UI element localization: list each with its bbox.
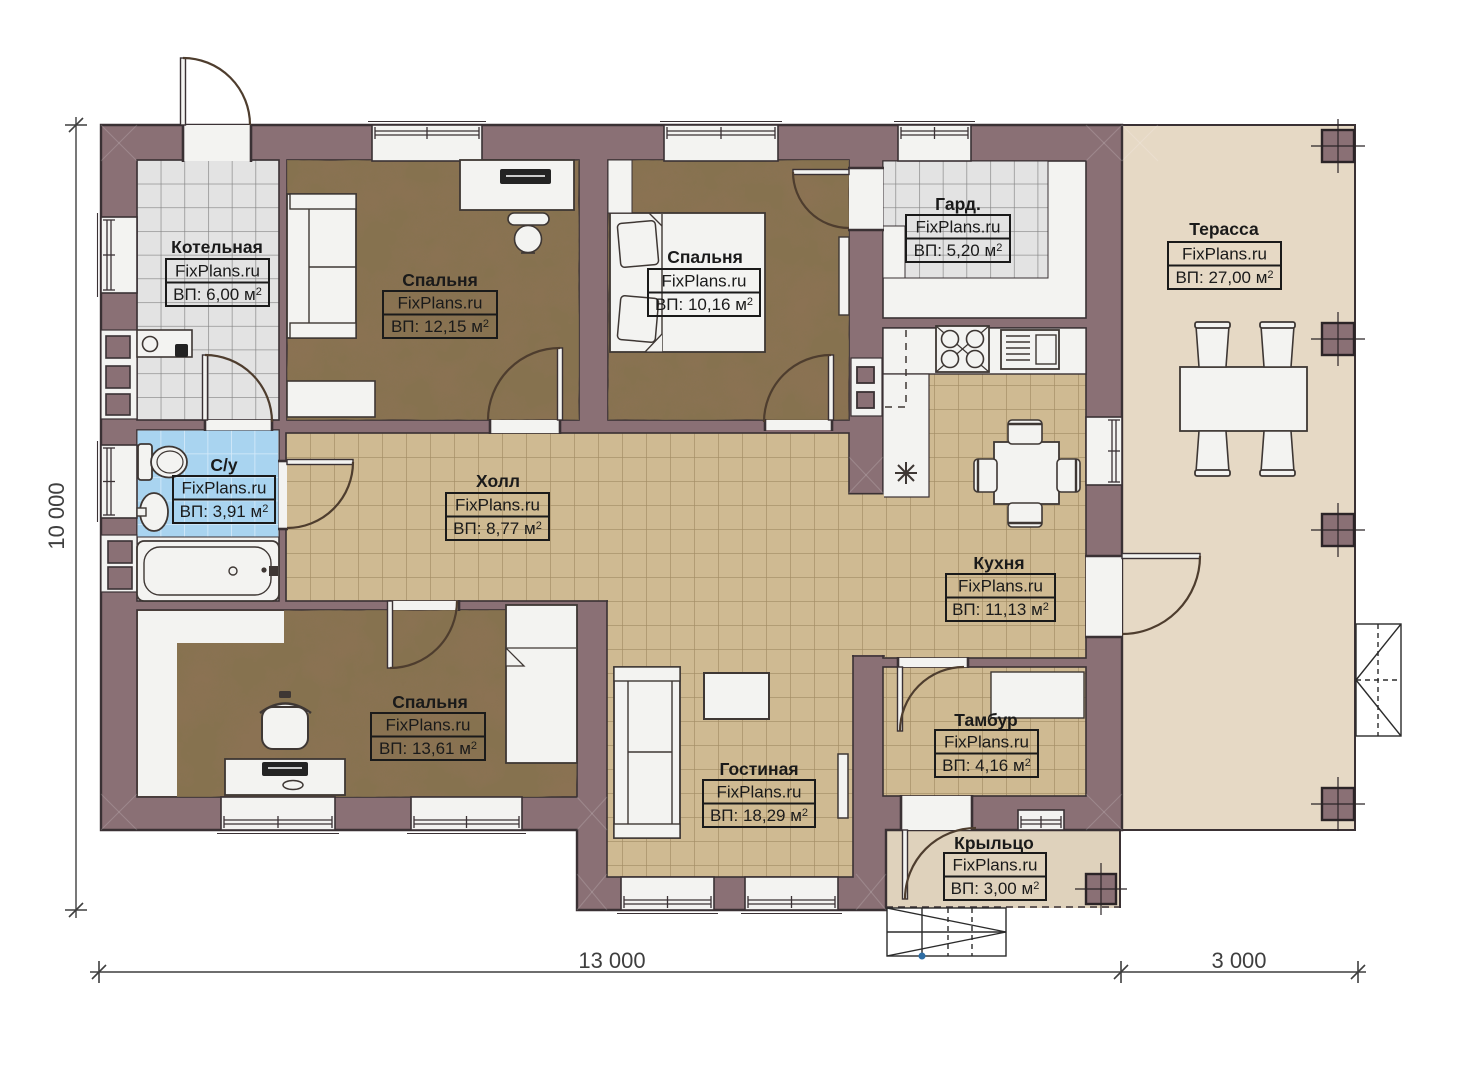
svg-text:FixPlans.ru: FixPlans.ru <box>1182 245 1267 264</box>
svg-text:ВП: 4,16 м2: ВП: 4,16 м2 <box>942 756 1031 775</box>
svg-text:FixPlans.ru: FixPlans.ru <box>661 272 746 291</box>
svg-text:10 000: 10 000 <box>44 482 69 549</box>
svg-text:ВП: 27,00 м2: ВП: 27,00 м2 <box>1175 268 1273 287</box>
svg-text:3 000: 3 000 <box>1211 948 1266 973</box>
svg-text:FixPlans.ru: FixPlans.ru <box>716 783 801 802</box>
svg-text:Гард.: Гард. <box>935 194 981 214</box>
svg-text:FixPlans.ru: FixPlans.ru <box>944 733 1029 752</box>
svg-text:ВП: 10,16 м2: ВП: 10,16 м2 <box>655 295 753 314</box>
svg-text:FixPlans.ru: FixPlans.ru <box>175 262 260 281</box>
svg-text:ВП: 5,20 м2: ВП: 5,20 м2 <box>914 241 1003 260</box>
svg-text:Крыльцо: Крыльцо <box>954 833 1034 853</box>
svg-text:FixPlans.ru: FixPlans.ru <box>958 577 1043 596</box>
svg-text:Терасса: Терасса <box>1189 219 1259 239</box>
svg-text:ВП: 11,13 м2: ВП: 11,13 м2 <box>952 600 1049 619</box>
svg-text:Тамбур: Тамбур <box>954 710 1017 730</box>
svg-text:ВП: 12,15 м2: ВП: 12,15 м2 <box>391 317 489 336</box>
svg-text:С/у: С/у <box>210 455 238 475</box>
svg-text:FixPlans.ru: FixPlans.ru <box>397 294 482 313</box>
svg-text:Спальня: Спальня <box>392 692 468 712</box>
svg-text:FixPlans.ru: FixPlans.ru <box>915 218 1000 237</box>
svg-text:Гостиная: Гостиная <box>719 759 798 779</box>
svg-text:FixPlans.ru: FixPlans.ru <box>952 856 1037 875</box>
svg-text:Котельная: Котельная <box>171 237 263 257</box>
svg-text:Спальня: Спальня <box>667 247 743 267</box>
svg-text:13 000: 13 000 <box>578 948 645 973</box>
svg-text:ВП: 6,00 м2: ВП: 6,00 м2 <box>173 285 262 304</box>
svg-text:ВП: 13,61 м2: ВП: 13,61 м2 <box>379 739 477 758</box>
svg-text:Кухня: Кухня <box>973 553 1024 573</box>
svg-text:ВП: 8,77 м2: ВП: 8,77 м2 <box>453 519 542 538</box>
svg-text:ВП: 18,29 м2: ВП: 18,29 м2 <box>710 806 808 825</box>
svg-text:Холл: Холл <box>476 471 520 491</box>
svg-text:FixPlans.ru: FixPlans.ru <box>455 496 540 515</box>
svg-text:ВП: 3,00 м2: ВП: 3,00 м2 <box>951 879 1040 898</box>
svg-text:Спальня: Спальня <box>402 270 478 290</box>
svg-text:FixPlans.ru: FixPlans.ru <box>181 479 266 498</box>
svg-text:FixPlans.ru: FixPlans.ru <box>385 716 470 735</box>
svg-text:ВП: 3,91 м2: ВП: 3,91 м2 <box>180 502 269 521</box>
